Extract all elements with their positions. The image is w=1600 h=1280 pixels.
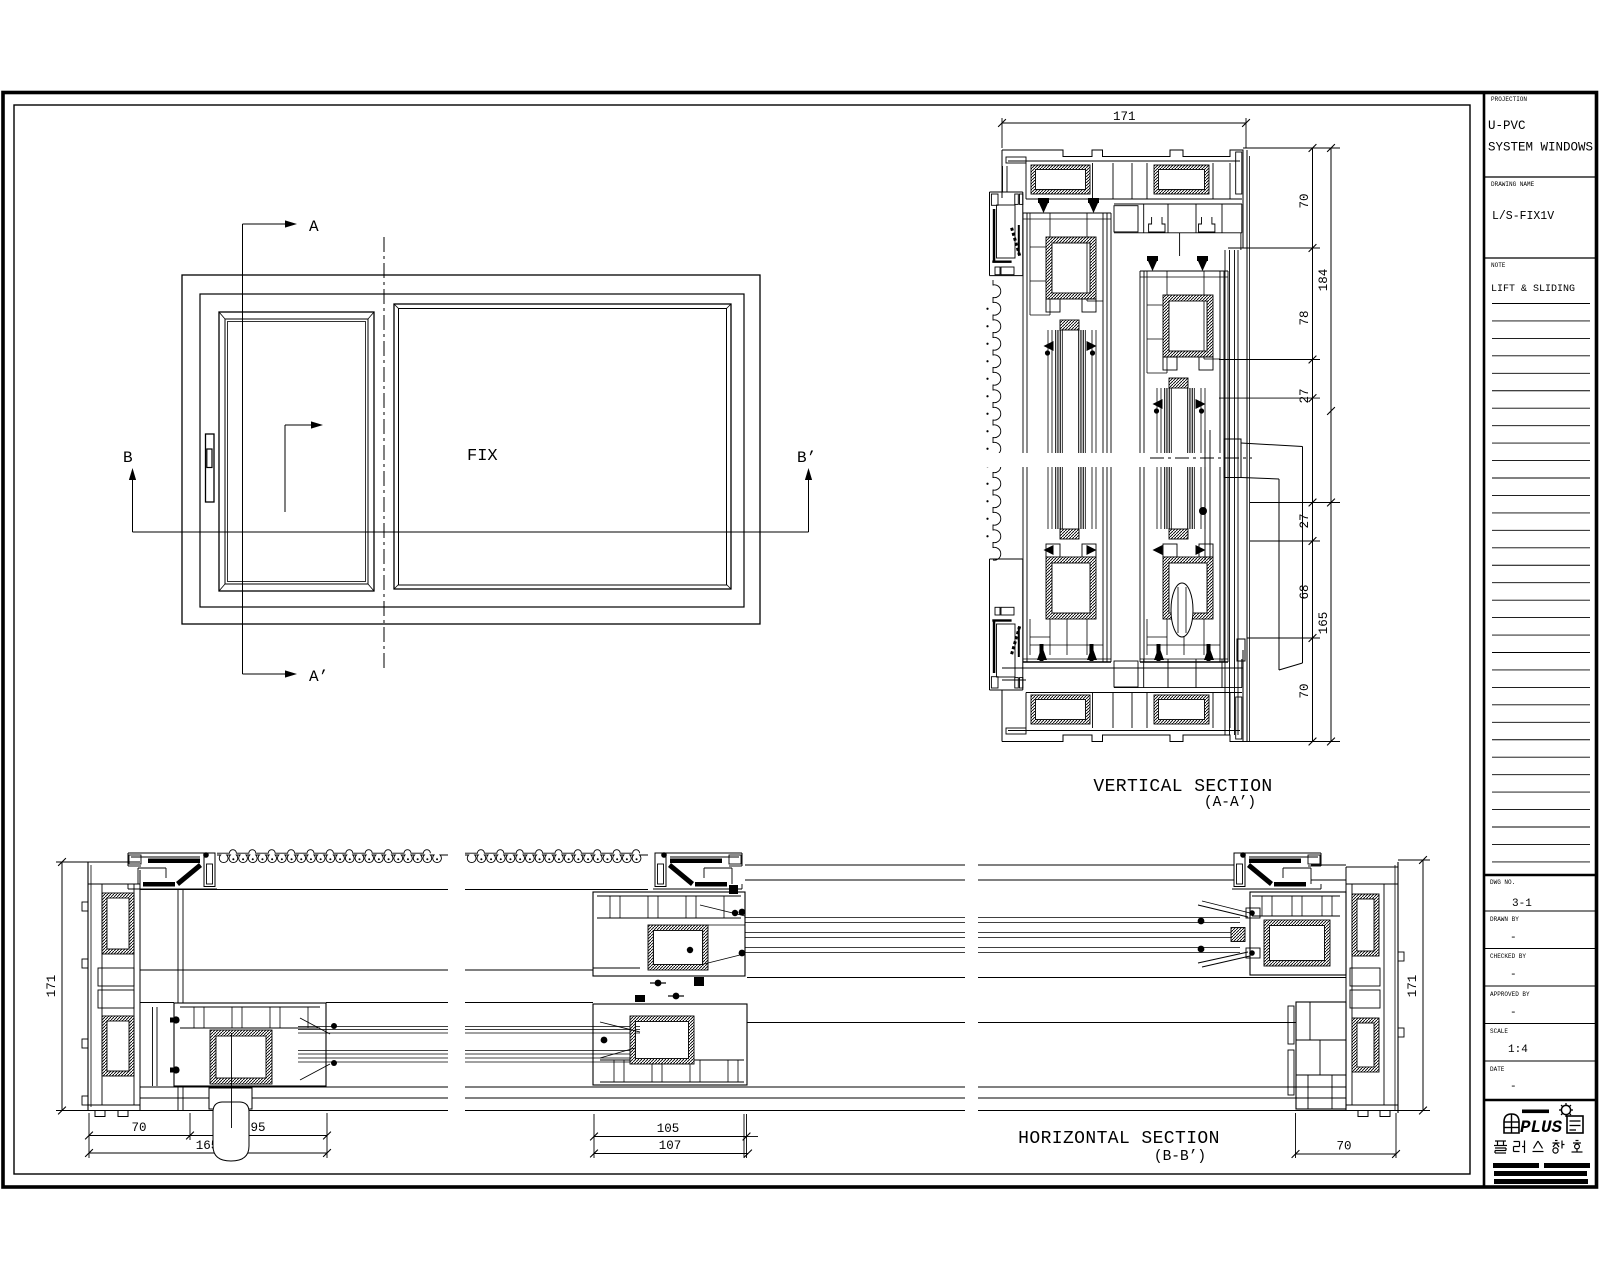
svg-text:DRAWN BY: DRAWN BY (1490, 916, 1519, 923)
svg-text:27: 27 (1298, 388, 1312, 403)
svg-text:70: 70 (1336, 1140, 1351, 1154)
svg-text:70: 70 (1298, 683, 1312, 698)
svg-text:DATE: DATE (1490, 1066, 1505, 1073)
svg-text:A: A (309, 218, 319, 236)
svg-text:3-1: 3-1 (1512, 898, 1532, 910)
svg-text:78: 78 (1298, 310, 1312, 325)
svg-text:HORIZONTAL SECTION: HORIZONTAL SECTION (1018, 1129, 1220, 1149)
svg-text:A’: A’ (309, 668, 328, 686)
svg-text:105: 105 (657, 1122, 680, 1136)
svg-text:27: 27 (1298, 513, 1312, 528)
svg-text:95: 95 (250, 1121, 265, 1135)
svg-text:APPROVED BY: APPROVED BY (1490, 991, 1530, 998)
svg-text:FIX: FIX (467, 447, 498, 466)
svg-text:VERTICAL SECTION: VERTICAL SECTION (1093, 777, 1272, 797)
svg-text:SYSTEM WINDOWS: SYSTEM WINDOWS (1488, 141, 1593, 155)
svg-text:SCALE: SCALE (1490, 1028, 1508, 1035)
svg-text:DRAWING NAME: DRAWING NAME (1491, 181, 1535, 188)
svg-text:68: 68 (1298, 584, 1312, 599)
svg-text:(A-A’): (A-A’) (1204, 795, 1256, 811)
svg-text:70: 70 (131, 1121, 146, 1135)
svg-text:LIFT & SLIDING: LIFT & SLIDING (1491, 284, 1575, 295)
svg-text:70: 70 (1298, 193, 1312, 208)
svg-text:171: 171 (45, 975, 59, 998)
svg-text:107: 107 (659, 1139, 682, 1153)
svg-text:171: 171 (1406, 975, 1420, 998)
svg-text:-: - (1510, 1007, 1517, 1019)
svg-text:(B-B’): (B-B’) (1154, 1149, 1206, 1165)
svg-text:-: - (1510, 932, 1517, 944)
svg-text:CHECKED BY: CHECKED BY (1490, 953, 1526, 960)
svg-text:U-PVC: U-PVC (1488, 119, 1526, 133)
svg-text:1:4: 1:4 (1508, 1044, 1528, 1056)
svg-text:B’: B’ (797, 449, 816, 467)
svg-text:-: - (1510, 1081, 1517, 1093)
svg-text:171: 171 (1113, 110, 1136, 124)
svg-text:184: 184 (1317, 269, 1331, 292)
svg-text:PROJECTION: PROJECTION (1491, 96, 1527, 103)
svg-text:-: - (1510, 969, 1517, 981)
svg-text:PLUS: PLUS (1520, 1118, 1563, 1138)
svg-text:DWG NO.: DWG NO. (1490, 879, 1515, 886)
svg-text:NOTE: NOTE (1491, 262, 1506, 269)
svg-text:165: 165 (1317, 612, 1331, 635)
svg-text:L/S-FIX1V: L/S-FIX1V (1492, 210, 1554, 223)
svg-text:B: B (123, 449, 133, 467)
